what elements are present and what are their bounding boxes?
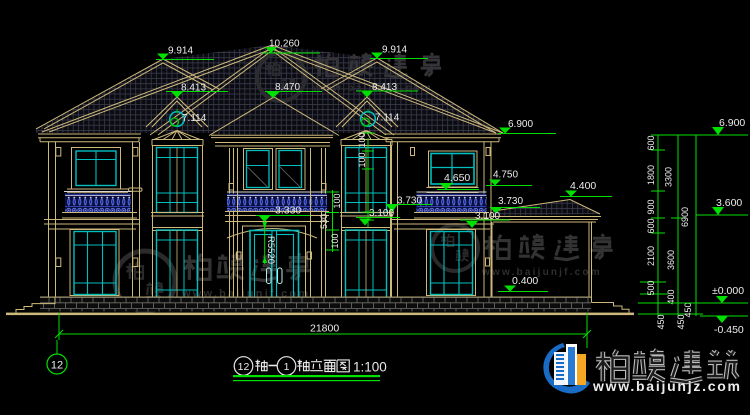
svg-text:8.470: 8.470 bbox=[275, 82, 300, 93]
svg-text:4.400: 4.400 bbox=[570, 180, 596, 192]
svg-text:3.100: 3.100 bbox=[369, 208, 394, 219]
svg-text:6900: 6900 bbox=[680, 207, 690, 227]
svg-text:900: 900 bbox=[646, 199, 656, 214]
svg-text:3.600: 3.600 bbox=[716, 197, 742, 209]
svg-text:500: 500 bbox=[646, 280, 656, 295]
svg-text:12: 12 bbox=[238, 361, 250, 373]
svg-text:450: 450 bbox=[683, 302, 693, 317]
svg-text:2100: 2100 bbox=[646, 246, 656, 266]
svg-text:1800: 1800 bbox=[646, 165, 656, 185]
svg-text:100: 100 bbox=[357, 152, 367, 167]
svg-text:9.914: 9.914 bbox=[382, 45, 407, 56]
svg-text:100: 100 bbox=[332, 193, 342, 208]
svg-text:21800: 21800 bbox=[310, 323, 339, 335]
svg-text:3.330: 3.330 bbox=[275, 205, 301, 217]
svg-text:100: 100 bbox=[330, 233, 340, 248]
svg-text:0.400: 0.400 bbox=[512, 275, 538, 287]
svg-text:8.413: 8.413 bbox=[372, 82, 397, 93]
svg-text:530: 530 bbox=[319, 214, 329, 229]
svg-text:10.260: 10.260 bbox=[269, 39, 300, 50]
svg-text:9.914: 9.914 bbox=[168, 46, 193, 57]
svg-text:R5520: R5520 bbox=[265, 236, 276, 264]
svg-text:3.730: 3.730 bbox=[397, 196, 422, 207]
svg-text:-0.450: -0.450 bbox=[714, 324, 744, 336]
svg-text:8.413: 8.413 bbox=[181, 83, 206, 94]
svg-text:3.730: 3.730 bbox=[498, 196, 523, 207]
svg-text:4.650: 4.650 bbox=[444, 172, 470, 184]
svg-text:600: 600 bbox=[646, 218, 656, 233]
svg-text:6.900: 6.900 bbox=[719, 117, 745, 129]
svg-text:4.750: 4.750 bbox=[493, 170, 518, 181]
svg-text:www.baijunjf.com: www.baijunjf.com bbox=[481, 267, 602, 278]
svg-text:12: 12 bbox=[51, 360, 63, 372]
svg-text:7.114: 7.114 bbox=[182, 113, 207, 124]
svg-text:450: 450 bbox=[656, 314, 666, 329]
svg-text:400: 400 bbox=[666, 289, 676, 304]
svg-text:100: 100 bbox=[357, 132, 367, 147]
svg-text:1: 1 bbox=[284, 361, 290, 373]
svg-text:±0.000: ±0.000 bbox=[712, 285, 744, 297]
svg-text:6.900: 6.900 bbox=[508, 119, 533, 130]
svg-text:3.100: 3.100 bbox=[475, 211, 500, 222]
svg-text:3600: 3600 bbox=[666, 250, 676, 270]
svg-text:1:100: 1:100 bbox=[353, 360, 387, 375]
svg-text:3300: 3300 bbox=[664, 167, 674, 187]
svg-text:7.114: 7.114 bbox=[375, 113, 400, 124]
svg-text:600: 600 bbox=[646, 135, 656, 150]
